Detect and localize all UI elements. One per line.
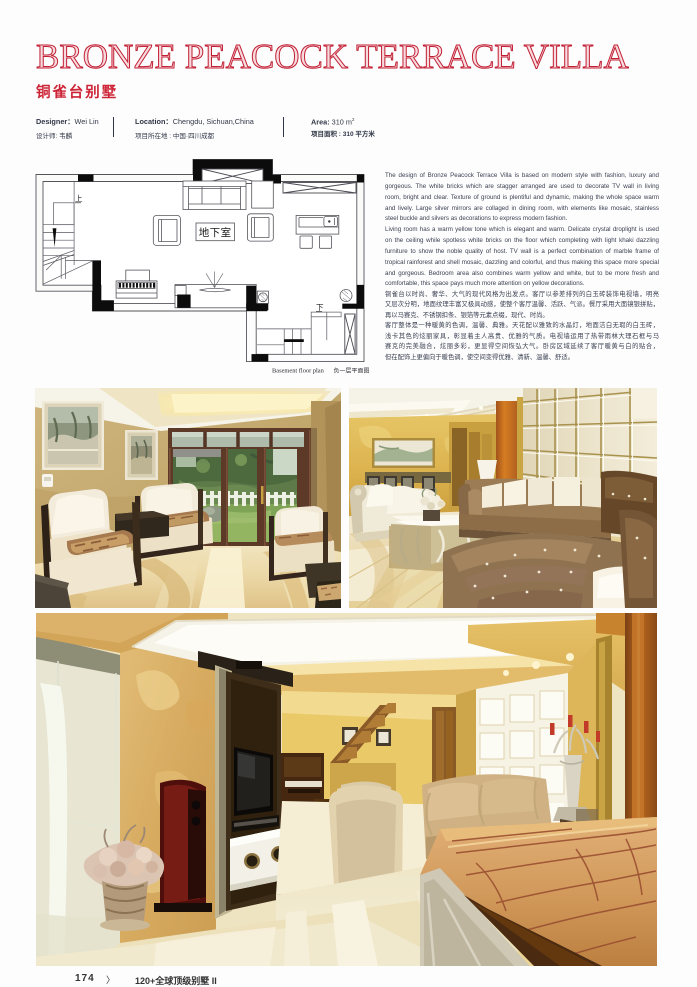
svg-text:上: 上 [75,194,83,203]
svg-text:下: 下 [316,303,324,312]
svg-text:负一层平面图: 负一层平面图 [334,367,370,375]
svg-text:Basement floor plan: Basement floor plan [272,368,325,375]
svg-text:地下室: 地下室 [199,226,232,239]
